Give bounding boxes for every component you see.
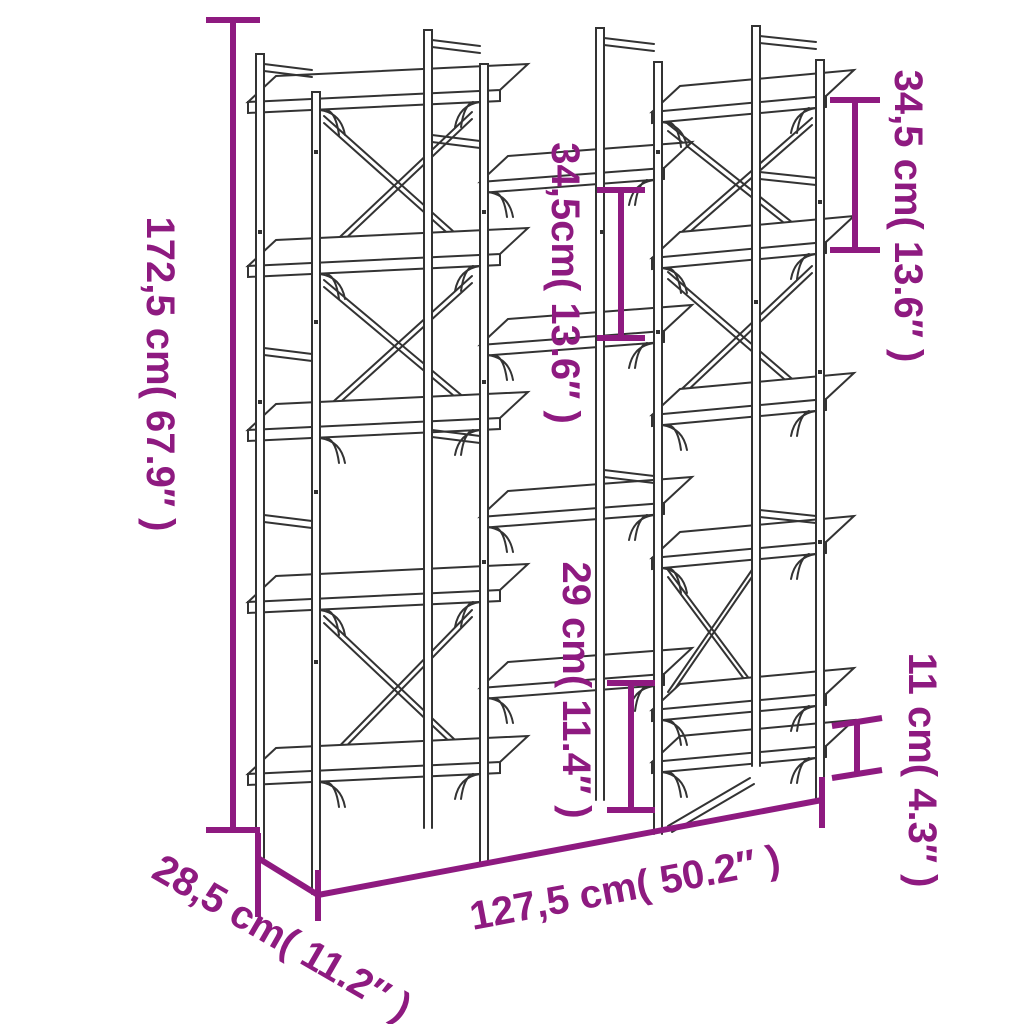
dimension-diagram-page: 172,5 cm( 67.9″ ) 34,5 cm( 13.6″ ) 34,5c… <box>0 0 1024 1024</box>
corner-bracket <box>629 343 654 368</box>
shelf-gap-bottom-right-label: 11 cm( 4.3″ ) <box>900 653 944 888</box>
post <box>654 62 662 834</box>
corner-bracket <box>791 758 816 783</box>
shelf-gap-bottom-middle-label: 29 cm( 11.4″ ) <box>554 561 598 818</box>
width-dimension-label: 127,5 cm( 50.2″ ) <box>466 837 784 939</box>
corner-bracket <box>662 425 687 450</box>
height-dimension-label: 172,5 cm( 67.9″ ) <box>138 217 182 532</box>
post <box>256 54 264 858</box>
corner-bracket <box>662 772 687 797</box>
corner-bracket <box>791 108 816 133</box>
shelf-gap-bottom-right-dimension: 11 cm( 4.3″ ) <box>832 653 944 888</box>
corner-bracket <box>488 192 513 217</box>
post <box>480 64 488 864</box>
corner-bracket <box>320 438 345 463</box>
post <box>752 26 760 766</box>
post <box>816 60 824 800</box>
corner-bracket <box>488 698 513 723</box>
height-dimension: 172,5 cm( 67.9″ ) <box>138 20 260 830</box>
depth-dimension: 28,5 cm( 11.2″ ) <box>145 833 419 1024</box>
corner-bracket <box>791 554 816 579</box>
shelf-gap-middle-label: 34,5cm( 13.6″ ) <box>543 142 587 424</box>
corner-bracket <box>488 527 513 552</box>
bookshelf-diagram: 172,5 cm( 67.9″ ) 34,5 cm( 13.6″ ) 34,5c… <box>0 0 1024 1024</box>
corner-bracket <box>320 782 345 807</box>
post <box>424 30 432 828</box>
corner-bracket <box>488 355 513 380</box>
corner-bracket <box>791 411 816 436</box>
corner-bracket <box>629 515 654 540</box>
shelf-gap-top-right-label: 34,5 cm( 13.6″ ) <box>886 70 930 363</box>
corner-bracket <box>455 774 480 799</box>
corner-bracket <box>662 268 687 293</box>
